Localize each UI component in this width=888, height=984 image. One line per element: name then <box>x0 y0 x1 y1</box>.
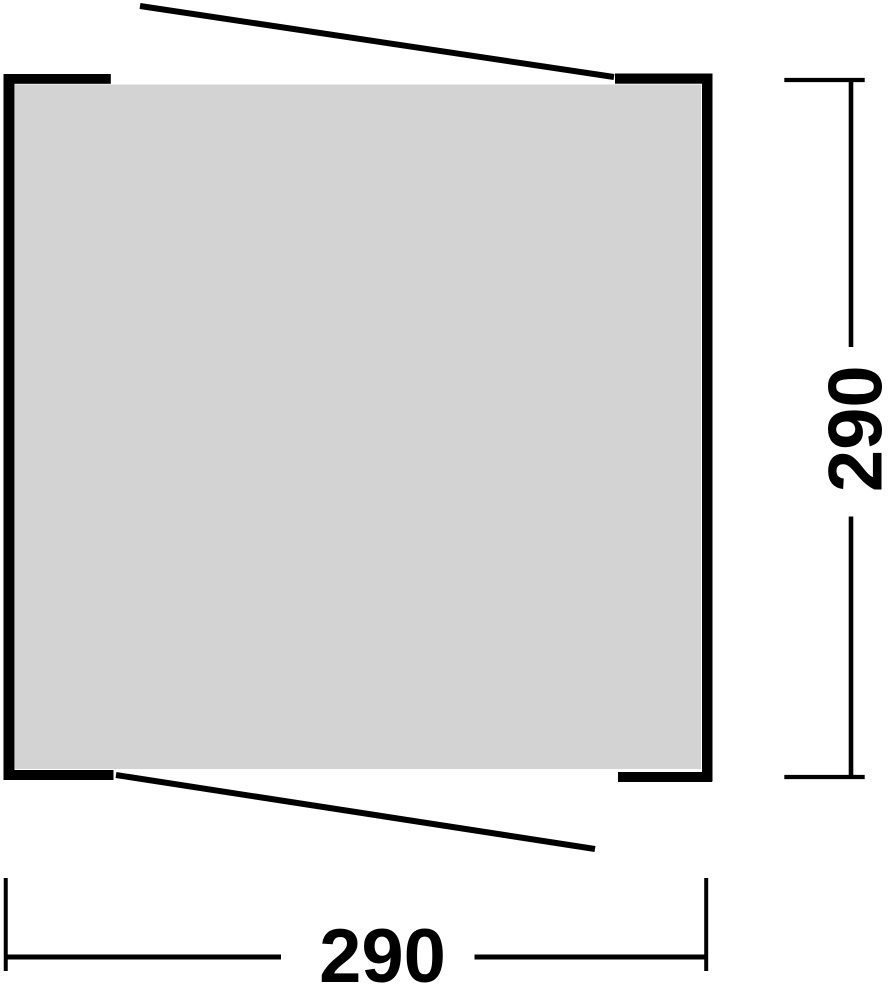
svg-text:290: 290 <box>814 365 888 492</box>
svg-text:290: 290 <box>319 914 446 984</box>
